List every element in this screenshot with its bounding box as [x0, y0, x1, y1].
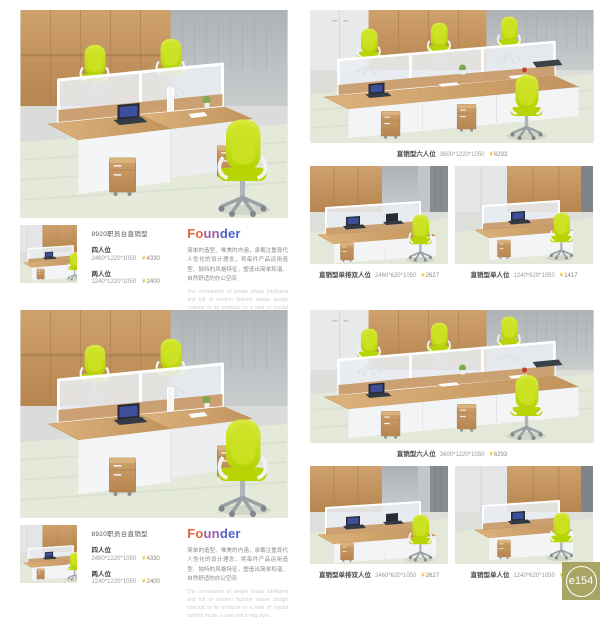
currency-symbol: ¥	[421, 273, 424, 279]
caption-price: ¥2627	[421, 573, 439, 579]
caption-name: 直销型单排双人位	[319, 572, 371, 579]
spec-price: ¥2400	[142, 279, 160, 285]
small-cell-single: 直销型单人位1240*620*1050¥1417	[455, 166, 593, 279]
caption-dimensions: 3600*1220*1050	[440, 152, 485, 158]
founder-logo-part: Fo	[187, 226, 203, 241]
product-spec-block: 8920职员台直销型 四人位 2460*1220*1050 ¥4330 两人位 …	[91, 525, 169, 585]
caption-price: ¥6293	[490, 152, 508, 158]
photo-single-seat-workstation[interactable]	[455, 466, 593, 564]
thumbnail-workstation-illustration	[20, 225, 77, 283]
caption-name: 直销型单排双人位	[319, 272, 371, 279]
founder-logo-part: un	[204, 526, 220, 541]
photo-six-seat-workstation[interactable]	[310, 310, 594, 443]
price-value: 4330	[147, 556, 160, 562]
right-column: 直销型六人位3600*1220*1050¥6293 直销型单排双人位2460*6…	[310, 310, 594, 579]
founder-description-zh: 简单的造型、唯美的内涵，承载注重现代人性化的设计理念，将每件产品运用造型、独特的…	[187, 547, 288, 584]
product-spec-block: 8920职员台直销型 四人位 2460*1220*1050 ¥4330 两人位 …	[91, 225, 169, 285]
currency-symbol: ¥	[421, 573, 424, 579]
catalog-half-top: 8920职员台直销型 四人位 2460*1220*1050 ¥4330 两人位 …	[0, 0, 600, 300]
price-value: 2627	[426, 273, 439, 279]
double-seat-workstation-illustration	[310, 166, 448, 264]
caption-six-seat: 直销型六人位3600*1220*1050¥6293	[310, 448, 594, 458]
product-info-row: 8920职员台直销型 四人位 2460*1220*1050 ¥4330 两人位 …	[20, 525, 288, 620]
caption-dimensions: 3600*1220*1050	[440, 452, 485, 458]
spec-two-seat: 两人位 1240*1220*1050 ¥2400	[91, 568, 169, 586]
caption-double-seat: 直销型单排双人位2460*620*1050¥2627	[310, 569, 448, 579]
spec-price: ¥4330	[142, 556, 160, 562]
price-value: 2627	[426, 573, 439, 579]
spec-label: 四人位	[91, 244, 169, 254]
small-cell-double: 直销型单排双人位2460*620*1050¥2627	[310, 466, 448, 579]
caption-price: ¥1417	[560, 273, 578, 279]
spec-price: ¥4330	[142, 256, 160, 262]
spec-two-seat: 两人位 1240*1220*1050 ¥2400	[91, 268, 169, 286]
photo-double-seat-workstation[interactable]	[310, 466, 448, 564]
caption-dimensions: 1240*620*1050	[513, 573, 554, 579]
caption-double-seat: 直销型单排双人位2460*620*1050¥2627	[310, 269, 448, 279]
price-value: 1417	[564, 273, 577, 279]
caption-price: ¥2627	[421, 273, 439, 279]
photo-four-seat-workstation[interactable]	[20, 310, 288, 518]
caption-dimensions: 2460*620*1050	[375, 573, 416, 579]
spec-dimensions: 1240*1220*1050	[91, 579, 136, 585]
caption-single-seat: 直销型单人位1240*620*1050¥1417	[455, 269, 593, 279]
founder-logo-part: un	[204, 226, 220, 241]
product-title: 8920职员台直销型	[91, 528, 169, 538]
spec-price: ¥2400	[142, 579, 160, 585]
founder-logo-part: der	[220, 526, 241, 541]
four-seat-workstation-illustration	[20, 10, 288, 218]
currency-symbol: ¥	[560, 273, 563, 279]
photo-thumbnail-workstation[interactable]	[20, 525, 77, 583]
photo-single-seat-workstation[interactable]	[455, 166, 593, 264]
currency-symbol: ¥	[142, 556, 145, 562]
founder-description-en: The connotation of simple shape intellig…	[187, 589, 288, 620]
currency-symbol: ¥	[490, 452, 493, 458]
six-seat-workstation-illustration	[310, 10, 594, 143]
founder-description-zh: 简单的造型、唯美的内涵，承载注重现代人性化的设计理念，将每件产品运用造型、独特的…	[187, 247, 288, 284]
currency-symbol: ¥	[490, 152, 493, 158]
spec-dimensions: 2460*1220*1050	[91, 556, 136, 562]
caption-name: 直销型单人位	[470, 572, 509, 579]
caption-name: 直销型六人位	[397, 451, 436, 458]
founder-logo: Founder	[187, 526, 288, 541]
left-column: 8920职员台直销型 四人位 2460*1220*1050 ¥4330 两人位 …	[20, 10, 288, 320]
caption-price: ¥6293	[490, 452, 508, 458]
caption-name: 直销型单人位	[470, 272, 509, 279]
small-photo-row: 直销型单排双人位2460*620*1050¥2627 直销型单人位1240*62…	[310, 466, 594, 579]
price-value: 4330	[147, 256, 160, 262]
photo-double-seat-workstation[interactable]	[310, 166, 448, 264]
caption-six-seat: 直销型六人位3600*1220*1050¥6293	[310, 148, 594, 158]
caption-dimensions: 2460*620*1050	[375, 273, 416, 279]
small-photo-row: 直销型单排双人位2460*620*1050¥2627 直销型单人位1240*62…	[310, 166, 594, 279]
spec-label: 两人位	[91, 568, 169, 578]
photo-four-seat-workstation[interactable]	[20, 10, 288, 218]
caption-dimensions: 1240*620*1050	[513, 273, 554, 279]
currency-symbol: ¥	[142, 279, 145, 285]
currency-symbol: ¥	[142, 579, 145, 585]
catalog-half-bottom: 8920职员台直销型 四人位 2460*1220*1050 ¥4330 两人位 …	[0, 300, 600, 600]
right-column: 直销型六人位3600*1220*1050¥6293 直销型单排双人位2460*6…	[310, 10, 594, 279]
price-value: 2400	[147, 279, 160, 285]
price-value: 6293	[494, 152, 507, 158]
spec-dimensions: 1240*1220*1050	[91, 279, 136, 285]
left-column: 8920职员台直销型 四人位 2460*1220*1050 ¥4330 两人位 …	[20, 310, 288, 620]
single-seat-workstation-illustration	[455, 166, 593, 264]
currency-symbol: ¥	[142, 256, 145, 262]
product-title: 8920职员台直销型	[91, 228, 169, 238]
caption-name: 直销型六人位	[397, 151, 436, 158]
price-value: 2400	[147, 579, 160, 585]
spec-label: 四人位	[91, 544, 169, 554]
four-seat-workstation-illustration	[20, 310, 288, 518]
photo-thumbnail-workstation[interactable]	[20, 225, 77, 283]
thumbnail-workstation-illustration	[20, 525, 77, 583]
page-number-badge: e154	[562, 562, 600, 600]
founder-logo-part: der	[220, 226, 241, 241]
spec-four-seat: 四人位 2460*1220*1050 ¥4330	[91, 544, 169, 562]
founder-logo-part: Fo	[187, 526, 203, 541]
single-seat-workstation-illustration	[455, 466, 593, 564]
small-cell-double: 直销型单排双人位2460*620*1050¥2627	[310, 166, 448, 279]
founder-logo: Founder	[187, 226, 288, 241]
double-seat-workstation-illustration	[310, 466, 448, 564]
spec-label: 两人位	[91, 268, 169, 278]
six-seat-workstation-illustration	[310, 310, 594, 443]
photo-six-seat-workstation[interactable]	[310, 10, 594, 143]
page-number-label: e154	[566, 566, 597, 597]
spec-dimensions: 2460*1220*1050	[91, 256, 136, 262]
spec-four-seat: 四人位 2460*1220*1050 ¥4330	[91, 244, 169, 262]
price-value: 6293	[494, 452, 507, 458]
founder-description-block: Founder 简单的造型、唯美的内涵，承载注重现代人性化的设计理念，将每件产品…	[187, 525, 288, 620]
